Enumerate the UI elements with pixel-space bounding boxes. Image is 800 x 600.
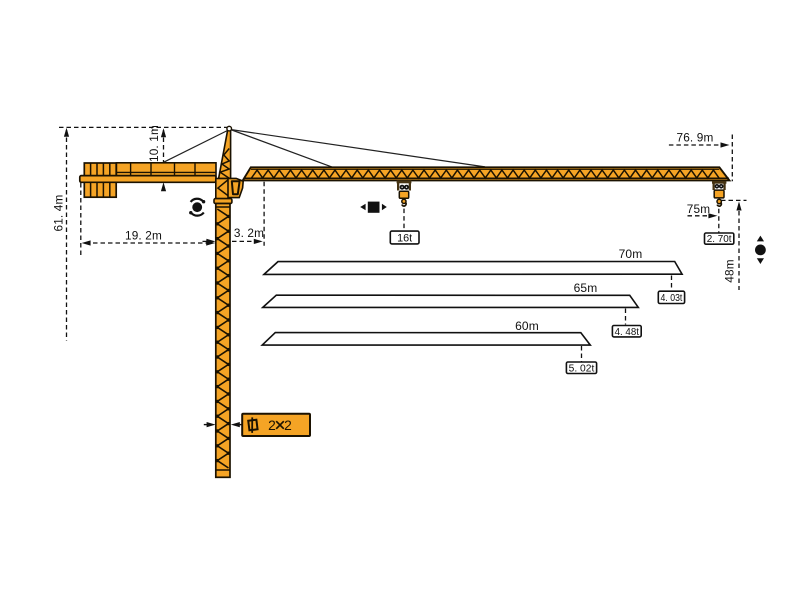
svg-text:75m: 75m: [687, 202, 710, 216]
svg-text:16t: 16t: [397, 232, 412, 244]
svg-text:5. 02t: 5. 02t: [569, 363, 595, 374]
svg-text:2: 2: [268, 418, 276, 433]
svg-text:4. 03t: 4. 03t: [661, 293, 683, 304]
svg-text:70m: 70m: [619, 247, 643, 261]
svg-text:19. 2m: 19. 2m: [125, 229, 162, 243]
svg-text:2: 2: [284, 418, 292, 433]
svg-text:3. 2m: 3. 2m: [234, 226, 264, 240]
svg-text:61. 4m: 61. 4m: [52, 194, 66, 231]
svg-text:65m: 65m: [574, 281, 598, 295]
svg-text:10. 1m: 10. 1m: [147, 125, 161, 162]
svg-text:2. 70t: 2. 70t: [707, 234, 732, 245]
svg-text:4. 48t: 4. 48t: [615, 327, 640, 338]
svg-text:48m: 48m: [723, 259, 737, 282]
svg-text:76. 9m: 76. 9m: [677, 131, 714, 145]
svg-text:60m: 60m: [515, 319, 539, 333]
